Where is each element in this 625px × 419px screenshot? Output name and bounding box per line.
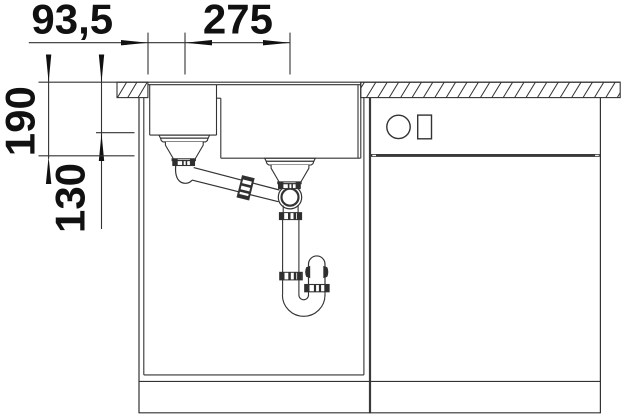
- svg-text:93,5: 93,5: [31, 0, 113, 43]
- svg-text:275: 275: [203, 0, 273, 43]
- svg-text:130: 130: [47, 163, 94, 233]
- svg-text:190: 190: [0, 86, 44, 156]
